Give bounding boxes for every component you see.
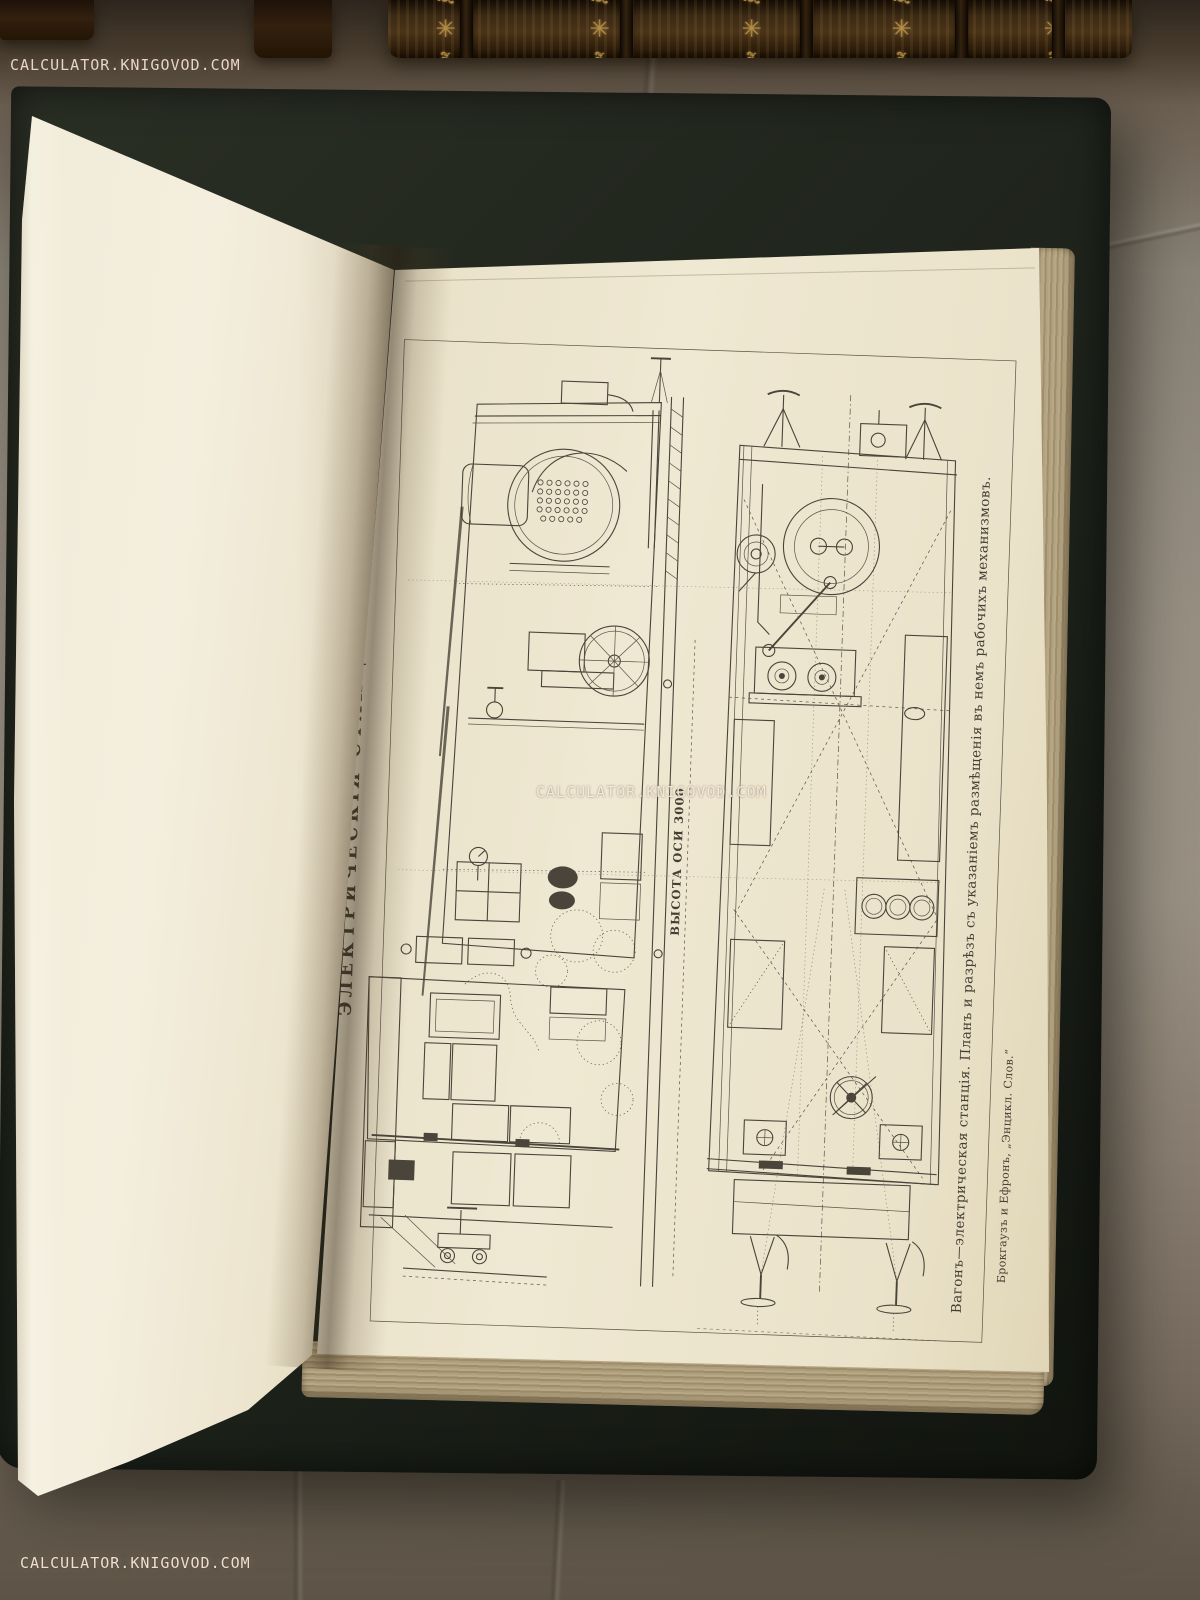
guide-line [408,574,953,599]
raised-band [620,0,633,58]
raised-band [460,0,473,58]
watermark-center: CALCULATOR.KNIGOVOD.COM [536,783,767,801]
section-and-plan-drawing [359,349,671,1288]
axis-height-label: ВЫСОТА ОСИ 3000 [668,787,687,936]
raised-band [800,0,813,58]
elevation-drawing [697,389,970,1341]
raised-band [1052,0,1065,58]
watermark-bottom-left: CALCULATOR.KNIGOVOD.COM [20,1554,251,1572]
book-corner-left [0,0,94,40]
plate-imprint: Брокгаузъ и Ефронъ, „Энцикл. Слов.“ [995,1049,1016,1284]
watermark-top-left: CALCULATOR.KNIGOVOD.COM [10,56,241,74]
spine-ornament: ❦ ✳ ❧ [737,0,765,58]
axis-rail: ВЫСОТА ОСИ 3000 [641,397,704,1288]
photo-of-open-book: ❦ ✳ ❧ ❦ ✳ ❧ ❦ ✳ ❧ ❦ ✳ ❧ ❦ ✳ ❧ [0,0,1200,1600]
plate-page: ЭЛЕКТРИЧЕСКІЯ СТАНЦІИ. VI. [295,240,1055,1390]
book-fragment [254,0,332,58]
raised-band [955,0,968,58]
spine-ornament: ❦ ✳ ❧ [585,0,613,58]
plate-frame [370,340,1016,1343]
spine-ornament: ❦ ✳ ❧ [431,0,459,58]
spine-ornament: ❦ ✳ ❧ [887,0,915,58]
boiler-tube-sheet [537,480,589,523]
plate-engraving: ЭЛЕКТРИЧЕСКІЯ СТАНЦІИ. VI. [295,240,1055,1390]
gilded-book-spine: ❦ ✳ ❧ ❦ ✳ ❧ ❦ ✳ ❧ ❦ ✳ ❧ ❦ ✳ ❧ [388,0,1132,58]
